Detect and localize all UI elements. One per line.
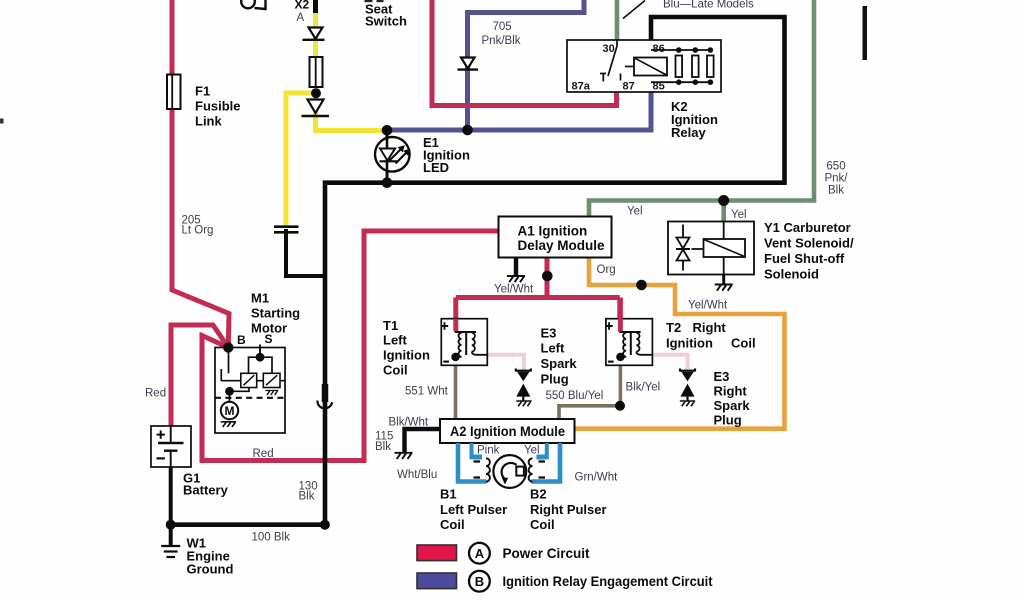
svg-text:Left: Left	[383, 333, 408, 348]
svg-text:A1 Ignition: A1 Ignition	[518, 224, 588, 239]
svg-text:650: 650	[826, 161, 845, 173]
svg-text:E3: E3	[714, 369, 730, 384]
svg-text:X2: X2	[295, 0, 310, 12]
svg-text:B2: B2	[530, 487, 547, 502]
svg-text:Ignition: Ignition	[666, 336, 713, 351]
svg-text:Red: Red	[253, 448, 274, 460]
svg-text:Delay Module: Delay Module	[518, 238, 606, 253]
svg-text:Blk: Blk	[828, 185, 844, 197]
svg-text:Yel/Wht: Yel/Wht	[494, 284, 534, 296]
svg-text:Yel: Yel	[627, 206, 643, 218]
svg-text:Solenoid: Solenoid	[764, 267, 819, 282]
svg-text:Y1 Carburetor: Y1 Carburetor	[764, 220, 851, 235]
svg-text:B: B	[237, 333, 246, 347]
svg-text:Fuel Shut-off: Fuel Shut-off	[764, 251, 845, 266]
svg-text:30: 30	[603, 43, 615, 55]
svg-text:Grn/Wht: Grn/Wht	[575, 472, 619, 484]
svg-text:85: 85	[653, 81, 665, 93]
svg-text:87: 87	[623, 81, 635, 93]
svg-text:Coil: Coil	[731, 336, 756, 351]
svg-text:Battery: Battery	[183, 483, 229, 498]
svg-text:Blk: Blk	[299, 491, 315, 503]
svg-text:Ignition: Ignition	[383, 348, 430, 363]
svg-text:B1: B1	[440, 487, 457, 502]
svg-text:A2 Ignition Module: A2 Ignition Module	[450, 424, 565, 439]
svg-text:B: B	[475, 574, 484, 589]
svg-text:Lt Org: Lt Org	[182, 225, 214, 237]
svg-text:T2: T2	[666, 320, 681, 335]
svg-text:A: A	[475, 546, 485, 561]
svg-text:Blu—Late Models: Blu—Late Models	[663, 0, 754, 11]
svg-text:86: 86	[653, 43, 665, 55]
svg-text:M: M	[225, 404, 235, 418]
svg-text:Ignition Relay Engagement Circ: Ignition Relay Engagement Circuit	[503, 574, 713, 589]
svg-text:Relay: Relay	[671, 125, 706, 140]
svg-text:Starting: Starting	[251, 306, 300, 321]
svg-text:A: A	[297, 12, 305, 24]
svg-text:Vent Solenoid/: Vent Solenoid/	[764, 236, 854, 251]
svg-text:Plug: Plug	[541, 372, 569, 387]
svg-text:M1: M1	[251, 291, 269, 306]
svg-text:T1: T1	[383, 318, 398, 333]
svg-text:Pnk/Blk: Pnk/Blk	[482, 35, 521, 47]
svg-text:Right: Right	[714, 384, 748, 399]
svg-text:Yel: Yel	[524, 445, 540, 457]
svg-text:Right: Right	[693, 320, 727, 335]
svg-text:Coil: Coil	[530, 517, 555, 532]
svg-text:Blk/Yel: Blk/Yel	[626, 382, 661, 394]
svg-text:Spark: Spark	[541, 356, 578, 371]
svg-text:Coil: Coil	[440, 517, 465, 532]
svg-text:Coil: Coil	[383, 363, 408, 378]
svg-text:Pink: Pink	[477, 445, 500, 457]
svg-text:Red: Red	[145, 388, 166, 400]
svg-text:Pnk/: Pnk/	[824, 173, 848, 185]
svg-text:Yel: Yel	[731, 209, 747, 221]
svg-text:F1: F1	[195, 84, 210, 99]
svg-text:Link: Link	[195, 114, 222, 129]
svg-text:Switch: Switch	[365, 14, 407, 29]
svg-text:Yel/Wht: Yel/Wht	[688, 300, 728, 312]
svg-text:100 Blk: 100 Blk	[252, 532, 291, 544]
svg-text:Plug: Plug	[714, 413, 742, 428]
svg-text:Left: Left	[541, 341, 566, 356]
svg-text:Left Pulser: Left Pulser	[440, 502, 507, 517]
svg-text:Ground: Ground	[187, 562, 234, 577]
svg-text:Power Circuit: Power Circuit	[503, 546, 591, 561]
svg-text:Fusible: Fusible	[195, 99, 241, 114]
svg-text:Org: Org	[597, 264, 616, 276]
svg-text:87a: 87a	[572, 81, 591, 93]
svg-text:705: 705	[493, 21, 512, 33]
svg-text:Blk: Blk	[375, 441, 391, 453]
svg-text:Wht/Blu: Wht/Blu	[397, 469, 437, 481]
svg-text:550 Blu/Yel: 550 Blu/Yel	[546, 390, 604, 402]
svg-text:Right Pulser: Right Pulser	[530, 502, 607, 517]
svg-text:Spark: Spark	[714, 398, 751, 413]
svg-text:Blk/Wht: Blk/Wht	[389, 417, 429, 429]
svg-text:S: S	[265, 332, 273, 346]
svg-text:E3: E3	[541, 326, 557, 341]
svg-text:551 Wht: 551 Wht	[405, 386, 449, 398]
svg-text:LED: LED	[423, 160, 449, 175]
